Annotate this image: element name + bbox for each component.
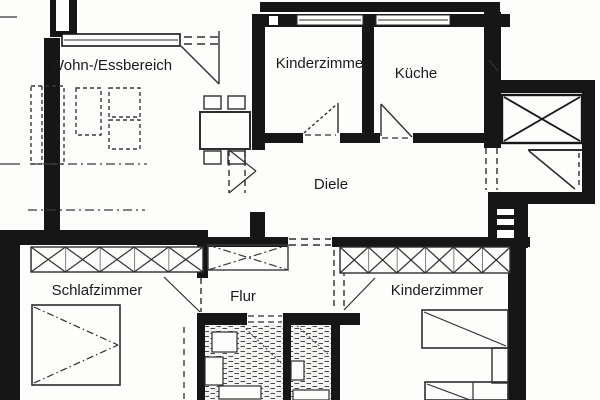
floorplan-drawing: Wohn-/Essbereich Kinderzimmer Küche Diel… xyxy=(0,0,600,400)
wardrobe-schlafzimmer xyxy=(31,247,203,272)
label-kueche: Küche xyxy=(395,65,438,82)
wardrobe-kinderzimmer-bottom xyxy=(340,247,510,273)
flur-closet xyxy=(208,245,288,270)
elevator-shaft xyxy=(502,95,582,143)
label-flur: Flur xyxy=(230,288,256,305)
dining-table-with-chairs xyxy=(200,96,250,164)
beds-kinderzimmer-bottom xyxy=(422,310,508,400)
label-wohn-essbereich: Wohn-/Essbereich xyxy=(50,57,172,74)
bed-schlafzimmer xyxy=(32,305,120,385)
floorplan-canvas: Wohn-/Essbereich Kinderzimmer Küche Diel… xyxy=(0,0,600,400)
wall-openings xyxy=(269,16,514,238)
label-schlafzimmer: Schlafzimmer xyxy=(52,282,143,299)
label-kinderzimmer-bottom: Kinderzimmer xyxy=(391,282,484,299)
label-kinderzimmer-top: Kinderzimmer xyxy=(276,55,369,72)
label-diele: Diele xyxy=(314,176,348,193)
